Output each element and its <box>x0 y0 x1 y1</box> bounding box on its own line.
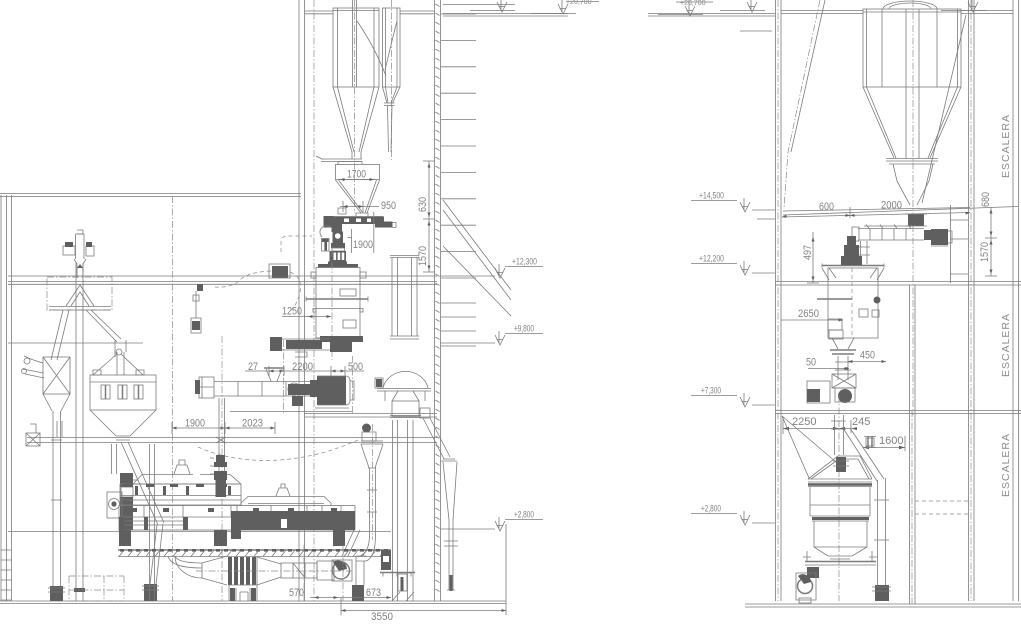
svg-text:+20,700: +20,700 <box>566 0 592 6</box>
svg-text:+12,200: +12,200 <box>699 254 724 264</box>
svg-text:ESCALERA: ESCALERA <box>1000 433 1012 497</box>
svg-text:570: 570 <box>289 587 304 599</box>
svg-text:2250: 2250 <box>792 416 816 428</box>
svg-text:+12,300: +12,300 <box>512 257 537 267</box>
svg-text:1700: 1700 <box>347 169 366 181</box>
svg-text:497: 497 <box>802 245 814 260</box>
svg-text:1570: 1570 <box>417 246 429 266</box>
svg-text:1570: 1570 <box>979 242 991 262</box>
svg-text:630: 630 <box>417 197 429 212</box>
svg-text:50: 50 <box>806 357 816 369</box>
svg-text:1900: 1900 <box>353 239 373 251</box>
svg-text:1250: 1250 <box>282 306 302 318</box>
svg-text:+2,800: +2,800 <box>514 510 534 520</box>
svg-text:+20,700: +20,700 <box>680 0 706 7</box>
svg-text:+14,500: +14,500 <box>699 191 724 201</box>
svg-text:+2,800: +2,800 <box>701 504 721 514</box>
svg-text:600: 600 <box>819 201 834 213</box>
svg-text:1600: 1600 <box>879 435 903 447</box>
svg-text:2650: 2650 <box>798 308 819 320</box>
svg-text:245: 245 <box>852 416 870 428</box>
svg-text:3550: 3550 <box>371 611 393 623</box>
svg-text:450: 450 <box>860 350 875 362</box>
svg-text:680: 680 <box>980 192 992 207</box>
svg-text:950: 950 <box>381 200 396 212</box>
svg-text:+7,300: +7,300 <box>701 386 721 396</box>
svg-text:ESCALERA: ESCALERA <box>1000 114 1012 178</box>
svg-text:ESCALERA: ESCALERA <box>1000 313 1012 377</box>
svg-text:+9,800: +9,800 <box>514 324 534 334</box>
svg-text:2000: 2000 <box>881 200 902 212</box>
